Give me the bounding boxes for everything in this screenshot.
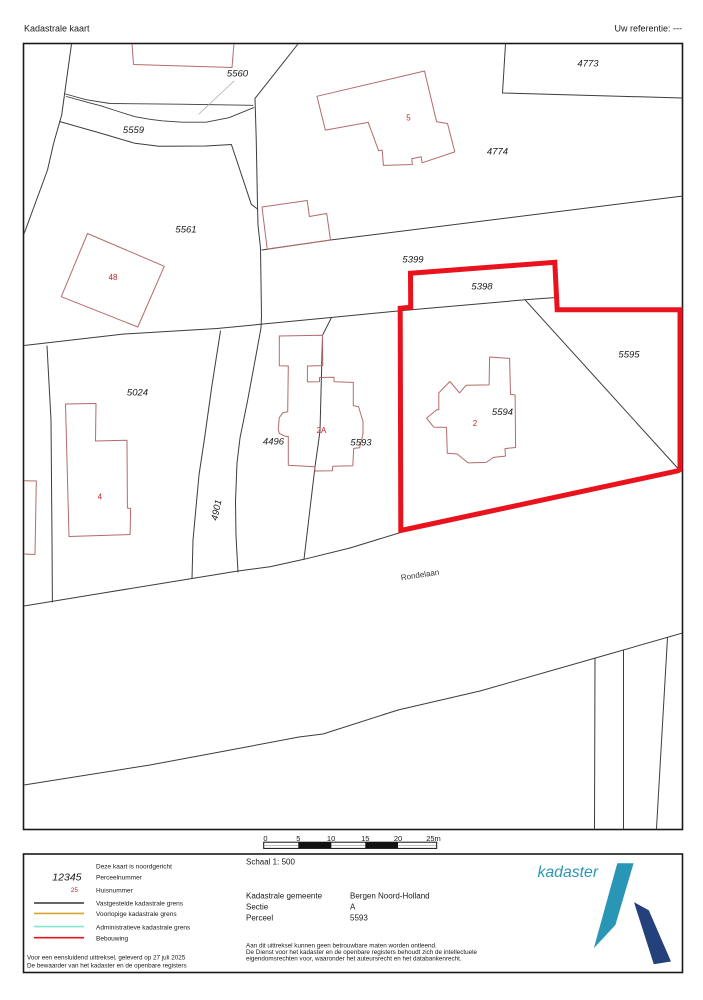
svg-text:0: 0 <box>263 834 267 843</box>
svg-text:5: 5 <box>406 114 411 123</box>
svg-text:Deze kaart is noordgericht: Deze kaart is noordgericht <box>96 863 172 870</box>
svg-text:5561: 5561 <box>175 225 196 236</box>
svg-text:12345: 12345 <box>52 872 81 884</box>
svg-text:5024: 5024 <box>127 388 148 399</box>
svg-text:5559: 5559 <box>123 125 145 136</box>
svg-text:4774: 4774 <box>487 147 508 158</box>
svg-text:20: 20 <box>394 834 402 843</box>
svg-text:Bebouwing: Bebouwing <box>96 935 129 942</box>
svg-text:15: 15 <box>361 834 369 843</box>
svg-text:Uw referentie: ---: Uw referentie: --- <box>614 24 682 34</box>
svg-text:Voorlopige kadastrale grens: Voorlopige kadastrale grens <box>96 911 177 918</box>
svg-text:10: 10 <box>327 834 335 843</box>
svg-text:5560: 5560 <box>227 69 249 80</box>
svg-text:4: 4 <box>98 493 103 502</box>
svg-text:5399: 5399 <box>402 255 424 266</box>
svg-text:Schaal 1: 500: Schaal 1: 500 <box>246 858 295 867</box>
svg-text:Voor een eensluidend uittrekse: Voor een eensluidend uittreksel, gelever… <box>27 955 186 962</box>
svg-text:5593: 5593 <box>350 914 368 923</box>
svg-text:2: 2 <box>473 419 478 428</box>
svg-text:5593: 5593 <box>350 438 372 449</box>
svg-text:kadaster: kadaster <box>538 864 599 881</box>
svg-text:Kadastrale gemeente: Kadastrale gemeente <box>246 892 323 901</box>
svg-text:4496: 4496 <box>263 437 285 448</box>
svg-text:Perceelnummer: Perceelnummer <box>96 875 143 882</box>
svg-text:5: 5 <box>296 834 300 843</box>
svg-text:eigendomsrechten voor, waarond: eigendomsrechten voor, waaronder het aut… <box>246 956 462 963</box>
svg-text:25m: 25m <box>426 834 441 843</box>
svg-text:4773: 4773 <box>577 59 599 70</box>
svg-text:Vastgestelde kadastrale grens: Vastgestelde kadastrale grens <box>96 900 184 907</box>
svg-text:5398: 5398 <box>471 282 493 293</box>
svg-text:Huisnummer: Huisnummer <box>96 887 134 894</box>
svg-text:Bergen Noord-Holland: Bergen Noord-Holland <box>350 892 430 901</box>
svg-text:5594: 5594 <box>492 407 513 418</box>
svg-text:Administratieve kadastrale gre: Administratieve kadastrale grens <box>96 924 191 931</box>
svg-text:25: 25 <box>71 887 79 894</box>
svg-text:Sectie: Sectie <box>246 903 269 912</box>
svg-text:De bewaarder van het kadaster: De bewaarder van het kadaster en de open… <box>27 962 187 969</box>
svg-text:A: A <box>350 903 356 912</box>
svg-text:5595: 5595 <box>618 350 640 361</box>
svg-text:Perceel: Perceel <box>246 914 273 923</box>
svg-text:48: 48 <box>109 273 118 282</box>
svg-text:2A: 2A <box>317 426 327 435</box>
svg-text:Kadastrale kaart: Kadastrale kaart <box>24 24 90 34</box>
